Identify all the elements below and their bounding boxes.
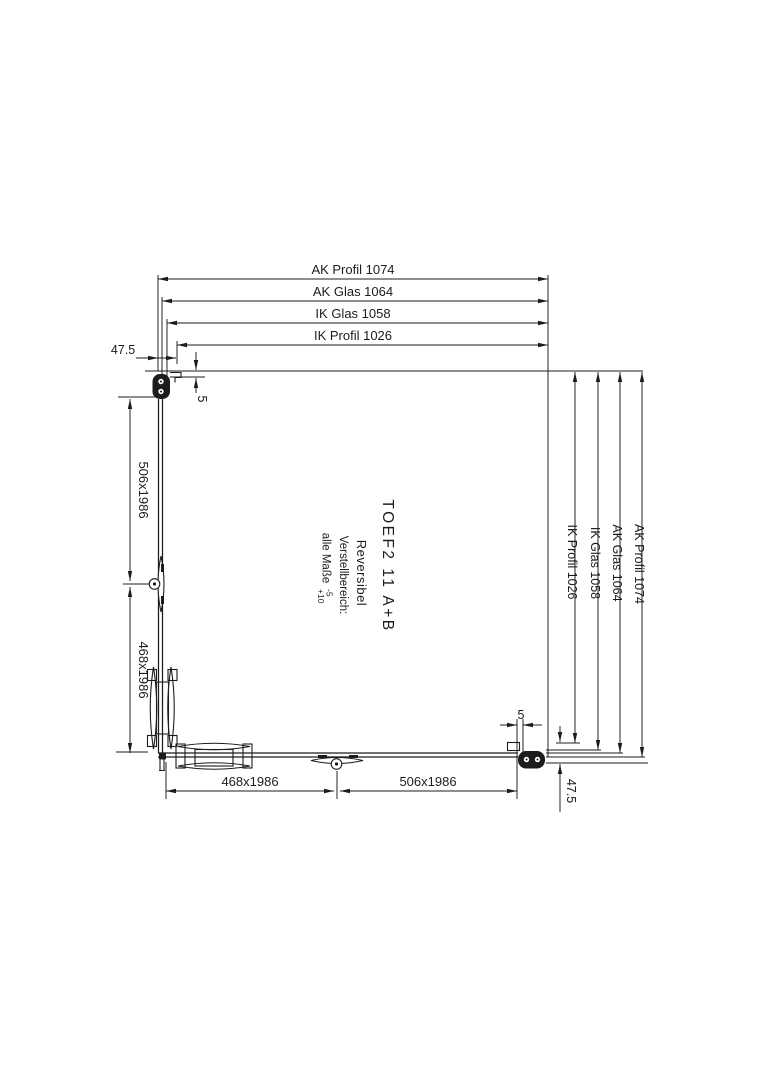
tolerance-plus: +10 <box>316 589 326 604</box>
dim-label-ik-profil-top: IK Profil 1026 <box>314 328 392 343</box>
dim-label-panel-506-bottom: 506x1986 <box>399 774 456 789</box>
adjustment-text: alle Maße <box>320 533 332 584</box>
bottom-dimension-labels: 468x1986 506x1986 <box>221 774 456 789</box>
handle-bottom-panel <box>176 743 252 769</box>
dim-label-ik-glas-right: IK Glas 1058 <box>588 527 602 599</box>
corner-joint <box>159 753 166 771</box>
variant-label: Reversibel <box>354 540 369 606</box>
annotation-block: TOEF2 11 A+B Reversibel Verstellbereich:… <box>316 499 396 632</box>
technical-drawing-canvas: AK Profil 1074 AK Glas 1064 IK Glas 1058… <box>0 0 764 1080</box>
connector-bottom-panel <box>311 757 363 770</box>
corner-stubs <box>159 760 165 771</box>
top-dimension-labels: AK Profil 1074 AK Glas 1064 IK Glas 1058… <box>311 262 394 343</box>
handle-grip-outer <box>178 743 250 750</box>
dim-label-ak-profil-top: AK Profil 1074 <box>311 262 394 277</box>
dim-label-ik-glas-top: IK Glas 1058 <box>315 306 390 321</box>
dim-label-ak-profil-right: AK Profil 1074 <box>632 524 646 604</box>
connector-knob-center <box>153 582 156 585</box>
hinge-pin <box>160 391 162 393</box>
dim-label-offset-bottom-right: 47.5 <box>564 779 578 803</box>
hinge-pin <box>526 759 528 761</box>
left-dimension-labels: 506x1986 468x1986 <box>136 461 151 698</box>
hinge-pin <box>537 759 539 761</box>
corner-block <box>159 753 166 760</box>
hinge-top-left <box>153 373 182 400</box>
dim-label-gap-top-left: 5 <box>195 396 209 403</box>
connector-left-panel <box>149 556 164 612</box>
dim-label-gap-bottom-right: 5 <box>518 708 525 722</box>
right-dimension-labels: IK Profil 1026 IK Glas 1058 AK Glas 1064… <box>565 524 646 604</box>
glass-panel-bottom <box>158 753 518 757</box>
model-designation: TOEF2 11 A+B <box>379 499 396 632</box>
hinge-bracket <box>508 743 520 751</box>
hinge-bracket <box>170 373 181 383</box>
dim-label-panel-468-left: 468x1986 <box>136 641 151 698</box>
dim-label-ik-profil-right: IK Profil 1026 <box>565 524 579 599</box>
dim-label-ak-glas-top: AK Glas 1064 <box>313 284 393 299</box>
connector-knob-center <box>335 762 338 765</box>
adjustment-tolerance-line: alle Maße -5 +10 <box>316 533 335 604</box>
dim-label-offset-top-left: 47.5 <box>111 343 135 357</box>
hinge-bottom-right <box>508 743 546 769</box>
hinge-body <box>153 374 171 399</box>
dim-label-panel-468-bottom: 468x1986 <box>221 774 278 789</box>
drawing-page: AK Profil 1074 AK Glas 1064 IK Glas 1058… <box>0 0 764 1080</box>
hinge-pin <box>160 381 162 383</box>
dim-label-panel-506-left: 506x1986 <box>136 461 151 518</box>
adjustment-heading: Verstellbereich: <box>337 536 349 615</box>
dim-label-ak-glas-right: AK Glas 1064 <box>610 524 624 601</box>
